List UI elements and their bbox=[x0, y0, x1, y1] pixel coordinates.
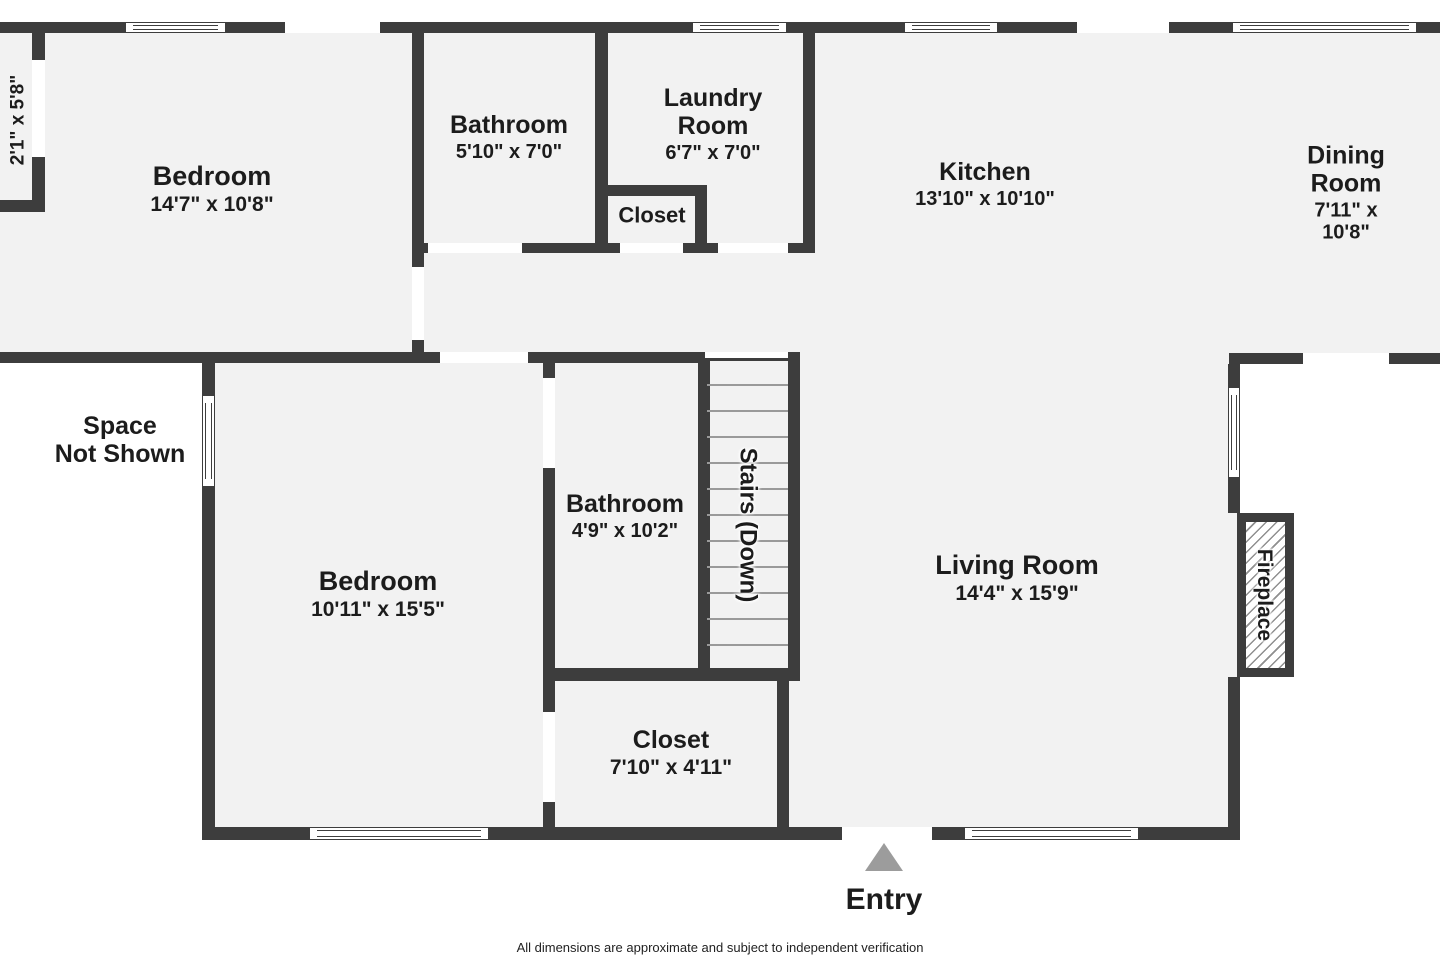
window-pane bbox=[205, 403, 212, 479]
wall bbox=[543, 363, 555, 378]
wall bbox=[32, 33, 45, 60]
room-dimensions: 4'9" x 10'2" bbox=[566, 520, 684, 542]
stair-tread bbox=[707, 436, 788, 438]
room-dimensions: 13'10" x 10'10" bbox=[915, 188, 1055, 210]
window-icon bbox=[965, 827, 1138, 840]
room-name: Closet bbox=[610, 726, 732, 754]
room-label-fireplace: Fireplace bbox=[1252, 549, 1276, 641]
window-icon bbox=[202, 396, 215, 486]
wall bbox=[412, 243, 428, 253]
room-name: Living Room bbox=[935, 550, 1099, 580]
room-dimensions: 5'10" x 7'0" bbox=[450, 141, 568, 163]
wall bbox=[522, 243, 620, 253]
stair-tread bbox=[707, 644, 788, 646]
wall bbox=[0, 352, 440, 363]
wall bbox=[528, 352, 705, 363]
door-opening bbox=[440, 352, 528, 363]
room-dimensions: 6'7" x 7'0" bbox=[664, 142, 763, 164]
wall bbox=[1138, 827, 1240, 840]
door-opening bbox=[32, 60, 45, 157]
window-pane bbox=[972, 830, 1131, 837]
room-label-living-room: Living Room14'4" x 15'9" bbox=[935, 550, 1099, 606]
door-opening bbox=[412, 267, 424, 340]
wall bbox=[32, 157, 45, 200]
room-label-bathroom-upper: Bathroom5'10" x 7'0" bbox=[450, 111, 568, 163]
room-label-stairs: Stairs (Down) bbox=[734, 448, 761, 603]
door-opening bbox=[428, 243, 522, 253]
window-pane bbox=[133, 25, 218, 30]
room-name: Laundry Room bbox=[664, 84, 763, 140]
room-label-dining-room: Dining Room7'11" x 10'8" bbox=[1299, 142, 1393, 245]
room-name: Stairs (Down) bbox=[734, 448, 761, 603]
wall bbox=[1228, 677, 1240, 840]
wall bbox=[786, 22, 905, 33]
wall bbox=[695, 196, 707, 243]
stair-tread bbox=[707, 384, 788, 386]
floor-plan: Entry All dimensions are approximate and… bbox=[0, 0, 1440, 960]
room-name: Bathroom bbox=[450, 111, 568, 139]
window-pane bbox=[912, 25, 990, 30]
room-label-closet-lower: Closet7'10" x 4'11" bbox=[610, 726, 732, 780]
window-icon bbox=[310, 827, 488, 840]
window-pane bbox=[1231, 395, 1237, 470]
door-opening bbox=[1303, 353, 1389, 364]
stair-tread bbox=[707, 410, 788, 412]
room-label-closet-upper: Closet bbox=[618, 204, 685, 229]
window-pane bbox=[700, 25, 779, 30]
entry-arrow-icon bbox=[865, 843, 903, 871]
room-dimensions: 7'10" x 4'11" bbox=[610, 756, 732, 780]
wall bbox=[777, 681, 789, 840]
room-label-bedroom-lower: Bedroom10'11" x 15'5" bbox=[311, 566, 445, 622]
wall bbox=[0, 22, 126, 33]
door-opening bbox=[543, 712, 555, 802]
window-icon bbox=[693, 22, 786, 33]
room-label-bedroom-upper: Bedroom14'7" x 10'8" bbox=[150, 161, 273, 217]
room-label-laundry-room: Laundry Room6'7" x 7'0" bbox=[664, 84, 763, 164]
wall bbox=[225, 22, 285, 33]
stair-top-edge bbox=[705, 358, 788, 361]
wall bbox=[683, 243, 718, 253]
wall bbox=[380, 22, 693, 33]
wall bbox=[788, 243, 815, 253]
room-name: 2'1" x 5'8" bbox=[7, 75, 28, 165]
room-name: Fireplace bbox=[1252, 549, 1276, 641]
wall bbox=[1169, 22, 1233, 33]
wall bbox=[202, 363, 215, 396]
room-label-bumpout-dims: 2'1" x 5'8" bbox=[7, 75, 28, 165]
door-opening bbox=[1077, 22, 1169, 33]
door-opening bbox=[285, 22, 380, 33]
wall bbox=[202, 827, 310, 840]
wall bbox=[1228, 477, 1240, 513]
room-label-space-not-shown: Space Not Shown bbox=[55, 412, 186, 468]
entry-label: Entry bbox=[846, 883, 923, 917]
room-name: Kitchen bbox=[915, 158, 1055, 186]
wall bbox=[803, 33, 815, 253]
window-pane bbox=[317, 830, 481, 837]
wall bbox=[1229, 353, 1303, 364]
wall bbox=[997, 22, 1077, 33]
window-icon bbox=[1233, 22, 1416, 33]
window-icon bbox=[126, 22, 225, 33]
wall bbox=[0, 200, 45, 212]
wall bbox=[543, 668, 800, 681]
wall bbox=[488, 827, 842, 840]
room-name: Dining Room bbox=[1299, 142, 1393, 198]
wall bbox=[1228, 364, 1240, 388]
room-label-bathroom-lower: Bathroom4'9" x 10'2" bbox=[566, 490, 684, 542]
room-name: Space Not Shown bbox=[55, 412, 186, 468]
door-opening bbox=[543, 378, 555, 468]
stair-tread bbox=[707, 618, 788, 620]
wall bbox=[932, 827, 965, 840]
wall bbox=[412, 33, 424, 267]
window-icon bbox=[905, 22, 997, 33]
wall bbox=[607, 185, 707, 196]
wall bbox=[1416, 22, 1440, 33]
door-opening bbox=[842, 827, 932, 840]
room-dimensions: 7'11" x 10'8" bbox=[1299, 200, 1393, 245]
wall bbox=[788, 352, 800, 681]
wall bbox=[595, 33, 608, 253]
room-name: Bathroom bbox=[566, 490, 684, 518]
window-icon bbox=[1228, 388, 1240, 477]
wall bbox=[1389, 353, 1440, 364]
wall bbox=[202, 486, 215, 840]
room-name: Closet bbox=[618, 204, 685, 229]
room-dimensions: 14'4" x 15'9" bbox=[935, 582, 1099, 606]
room-name: Bedroom bbox=[150, 161, 273, 191]
door-opening bbox=[620, 243, 683, 253]
room-label-kitchen: Kitchen13'10" x 10'10" bbox=[915, 158, 1055, 210]
window-pane bbox=[1240, 25, 1409, 30]
wall bbox=[698, 358, 710, 668]
room-dimensions: 10'11" x 15'5" bbox=[311, 598, 445, 622]
room-dimensions: 14'7" x 10'8" bbox=[150, 193, 273, 217]
disclaimer-text: All dimensions are approximate and subje… bbox=[517, 940, 924, 955]
door-opening bbox=[718, 243, 788, 253]
room-name: Bedroom bbox=[311, 566, 445, 596]
